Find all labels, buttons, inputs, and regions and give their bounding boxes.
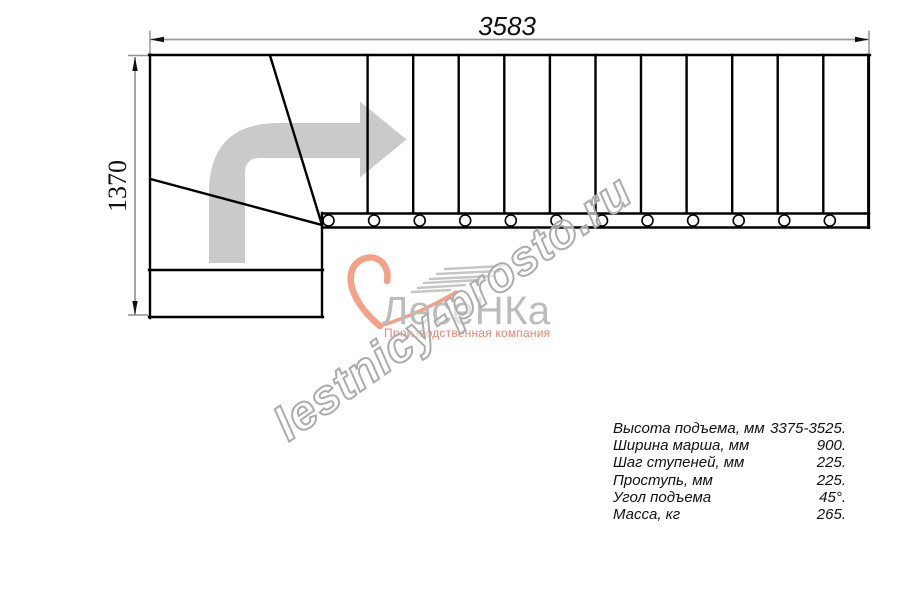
spec-label: Масса, кг: [613, 506, 680, 523]
spec-value: 3375-3525.: [770, 420, 846, 437]
spec-value: 225.: [817, 454, 846, 471]
spec-row: Ширина марша, мм 900.: [613, 437, 846, 454]
dimension-width: 3583: [128, 11, 869, 56]
dim-arrowhead-top: [132, 57, 137, 71]
spec-value: 225.: [817, 472, 846, 489]
dim-arrowhead-right: [855, 37, 869, 42]
staircase-drawing-page: 3583 1370 ЛесеНКа Производственная компа…: [0, 0, 900, 600]
dimension-height: 1370: [103, 57, 148, 315]
spec-label: Ширина марша, мм: [613, 437, 749, 454]
bolt-circle: [824, 215, 835, 226]
bolt-circle: [414, 215, 425, 226]
dim-height-label: 1370: [103, 160, 132, 212]
bolt-circle: [642, 215, 653, 226]
spec-label: Проступь, мм: [613, 472, 713, 489]
spec-value: 265.: [817, 506, 846, 523]
bolt-circle: [369, 215, 380, 226]
spec-value: 900.: [817, 437, 846, 454]
spec-label: Высота подъема, мм: [613, 420, 765, 437]
spec-table: Высота подъема, мм 3375-3525. Ширина мар…: [613, 420, 846, 523]
bolt-circle: [733, 215, 744, 226]
bolt-circle: [779, 215, 790, 226]
spec-value: 45°.: [819, 489, 846, 506]
spec-row: Проступь, мм 225.: [613, 472, 846, 489]
bolt-circle: [505, 215, 516, 226]
dim-arrowhead-left: [150, 37, 164, 42]
spec-row: Масса, кг 265.: [613, 506, 846, 523]
spec-row: Высота подъема, мм 3375-3525.: [613, 420, 846, 437]
spec-label: Угол подъема: [613, 489, 711, 506]
dim-arrowhead-bottom: [132, 301, 137, 315]
bolt-circle: [323, 215, 334, 226]
bolt-circle: [688, 215, 699, 226]
spec-label: Шаг ступеней, мм: [613, 454, 744, 471]
spec-row: Угол подъема 45°.: [613, 489, 846, 506]
spec-row: Шаг ступеней, мм 225.: [613, 454, 846, 471]
dim-width-label: 3583: [478, 11, 536, 41]
bolt-circle: [460, 215, 471, 226]
